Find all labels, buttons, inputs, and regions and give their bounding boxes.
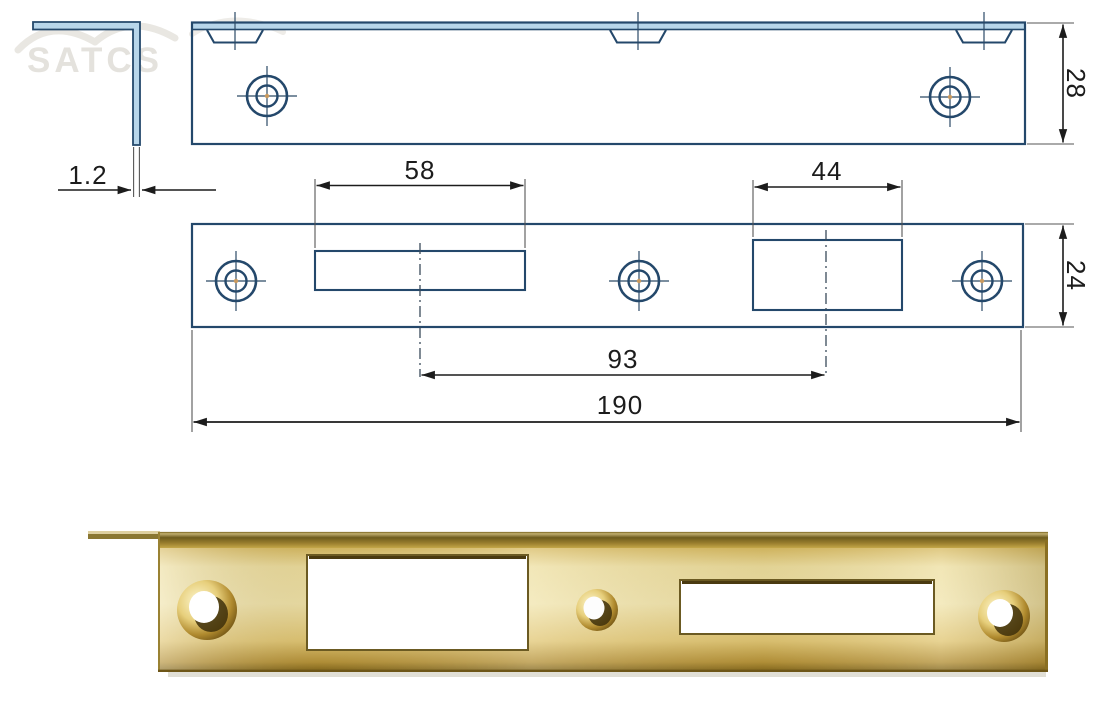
plate-lip-protrusion (88, 531, 160, 539)
deadbolt-cutout (753, 240, 902, 310)
screw-hole-symbol (952, 251, 1012, 311)
rear-view-outline (192, 23, 1025, 145)
strike-plate-catalog-image: SATCS 1.2 (0, 0, 1100, 715)
dimension-label-upper-plate-width: 28 (1061, 68, 1091, 99)
photo-screw-hole-right (978, 590, 1030, 642)
screw-hole-symbol (206, 251, 266, 311)
screw-hole-symbol (920, 67, 980, 127)
dimension-overall-length: 190 (192, 330, 1021, 432)
screw-hole-symbol (237, 66, 297, 126)
countersink-notch-left (207, 12, 263, 50)
dimension-label-latch-cutout: 58 (405, 155, 436, 185)
dimension-label-overall-length: 190 (597, 390, 643, 420)
countersink-notch-right (956, 12, 1012, 50)
plate-top-lip (158, 532, 1048, 548)
photo-screw-hole-left (177, 580, 237, 640)
countersink-notch-center (610, 12, 666, 50)
watermark-text: SATCS (27, 41, 163, 80)
dimension-upper-plate-width: 28 (1027, 23, 1091, 144)
photo-screw-hole-center (576, 589, 618, 631)
brass-strike-plate-photo (88, 531, 1048, 677)
dimension-thickness: 1.2 (58, 160, 216, 190)
photo-deadbolt-cutout (680, 580, 934, 634)
screw-hole-symbol (609, 251, 669, 311)
rear-view (192, 12, 1025, 144)
dimension-cutout-center-distance: 93 (422, 344, 825, 375)
dimension-lower-plate-width: 24 (1025, 224, 1091, 327)
drawing-and-photo-canvas: SATCS 1.2 (0, 0, 1100, 715)
photo-latch-cutout (307, 555, 528, 650)
dimension-label-thickness: 1.2 (68, 160, 107, 190)
dimension-latch-cutout-length: 58 (315, 155, 525, 248)
dimension-label-lower-plate-width: 24 (1061, 260, 1091, 291)
dimension-label-deadbolt-cutout: 44 (812, 156, 843, 186)
dimension-label-center-distance: 93 (608, 344, 639, 374)
